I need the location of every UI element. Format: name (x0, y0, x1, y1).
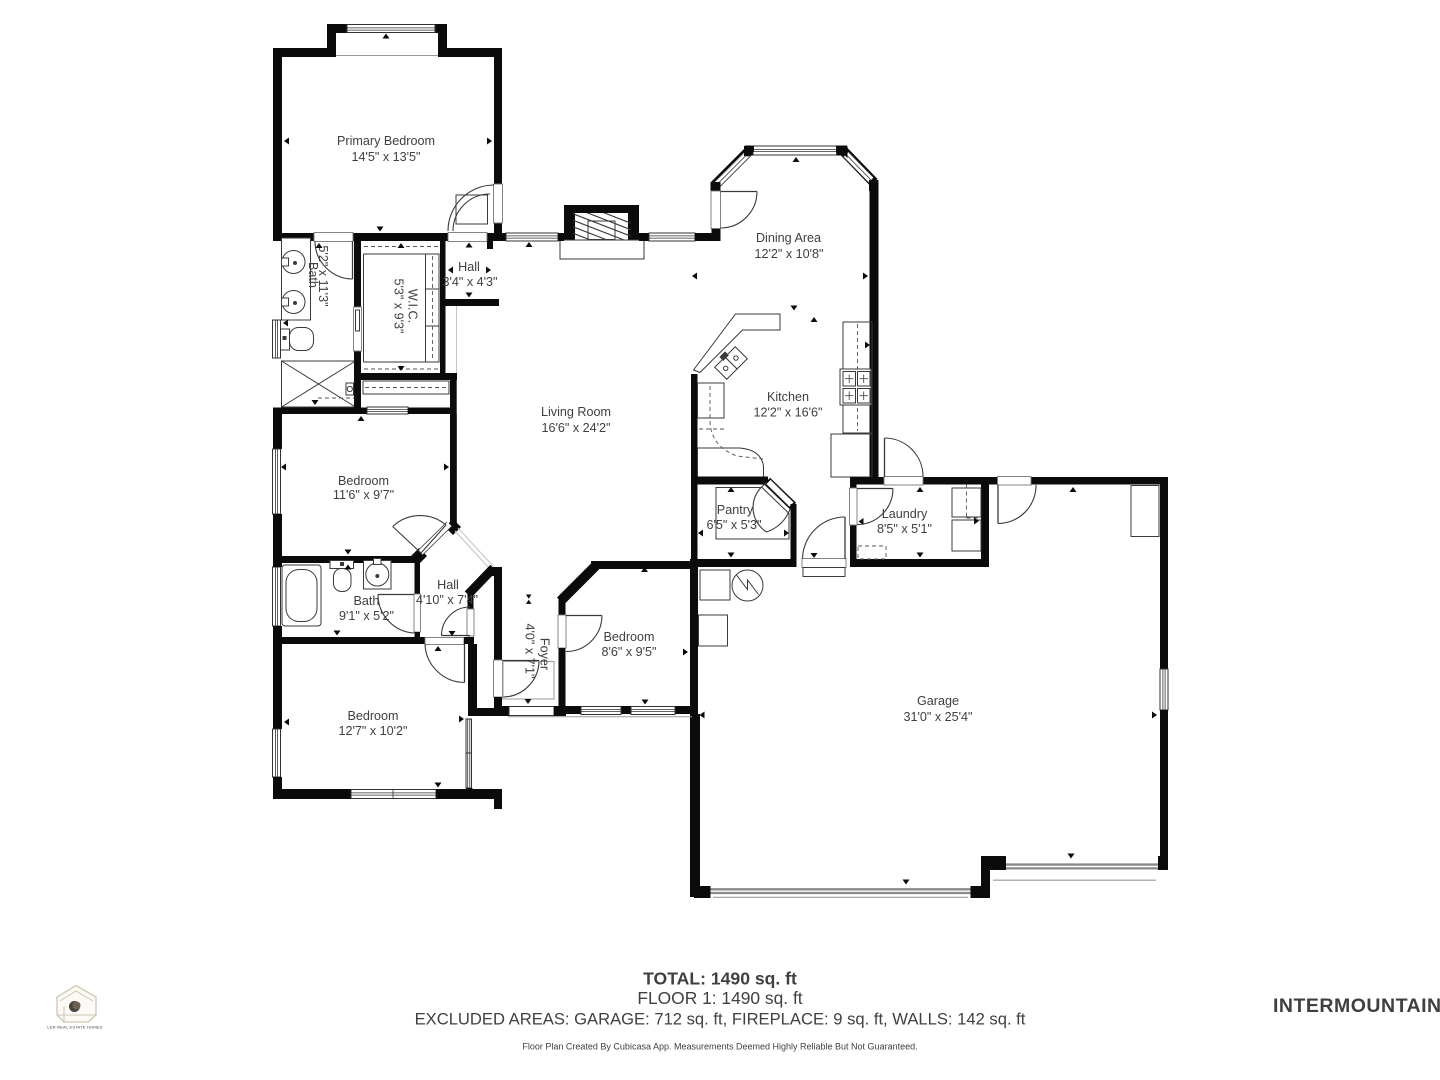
svg-text:Hall: Hall (458, 260, 480, 274)
svg-text:11'6" x 9'7": 11'6" x 9'7" (333, 488, 394, 502)
svg-text:14'5" x 13'5": 14'5" x 13'5" (351, 150, 420, 164)
svg-text:LER REAL ESTATE HOMES: LER REAL ESTATE HOMES (47, 1025, 102, 1030)
svg-text:Bedroom: Bedroom (338, 474, 389, 488)
svg-text:16'6" x 24'2": 16'6" x 24'2" (541, 421, 610, 435)
svg-text:EXCLUDED AREAS: GARAGE: 712 sq: EXCLUDED AREAS: GARAGE: 712 sq. ft, FIRE… (415, 1010, 1026, 1029)
svg-text:12'2" x 10'8": 12'2" x 10'8" (754, 247, 823, 261)
svg-text:5'3" x 9'3": 5'3" x 9'3" (392, 278, 406, 333)
svg-text:Hall: Hall (437, 578, 459, 592)
svg-text:5'2" x 11'3": 5'2" x 11'3" (316, 245, 330, 306)
svg-text:W.I.C.: W.I.C. (406, 289, 420, 323)
svg-text:Kitchen: Kitchen (767, 390, 809, 404)
svg-text:6'5" x 5'3": 6'5" x 5'3" (706, 518, 761, 532)
svg-text:4'10" x 7'4": 4'10" x 7'4" (416, 593, 478, 607)
svg-text:Floor Plan Created By Cubicasa: Floor Plan Created By Cubicasa App. Meas… (522, 1042, 917, 1052)
svg-text:3'4" x 4'3": 3'4" x 4'3" (442, 275, 497, 289)
svg-text:8'5" x 5'1": 8'5" x 5'1" (877, 522, 932, 536)
svg-text:Foyer: Foyer (538, 638, 552, 670)
svg-text:FLOOR 1: 1490 sq. ft: FLOOR 1: 1490 sq. ft (637, 988, 802, 1008)
svg-text:4'0" x 7'1": 4'0" x 7'1" (523, 623, 537, 678)
svg-text:TOTAL: 1490 sq. ft: TOTAL: 1490 sq. ft (643, 969, 797, 989)
svg-text:Bedroom: Bedroom (347, 709, 398, 723)
svg-text:31'0" x 25'4": 31'0" x 25'4" (903, 710, 972, 724)
svg-text:12'7" x 10'2": 12'7" x 10'2" (338, 724, 407, 738)
svg-text:INTERMOUNTAIN: INTERMOUNTAIN (1273, 995, 1440, 1017)
svg-text:Dining Area: Dining Area (756, 231, 821, 245)
svg-text:Pantry: Pantry (717, 503, 754, 517)
svg-text:Bedroom: Bedroom (603, 630, 654, 644)
svg-text:Primary Bedroom: Primary Bedroom (337, 134, 435, 148)
svg-text:8'6" x 9'5": 8'6" x 9'5" (601, 645, 656, 659)
svg-text:Laundry: Laundry (882, 507, 928, 521)
svg-text:9'1" x 5'2": 9'1" x 5'2" (339, 609, 394, 623)
svg-text:Living Room: Living Room (541, 405, 611, 419)
svg-text:Garage: Garage (917, 694, 959, 708)
svg-text:Bath: Bath (354, 594, 380, 608)
svg-text:12'2" x 16'6": 12'2" x 16'6" (753, 406, 822, 420)
